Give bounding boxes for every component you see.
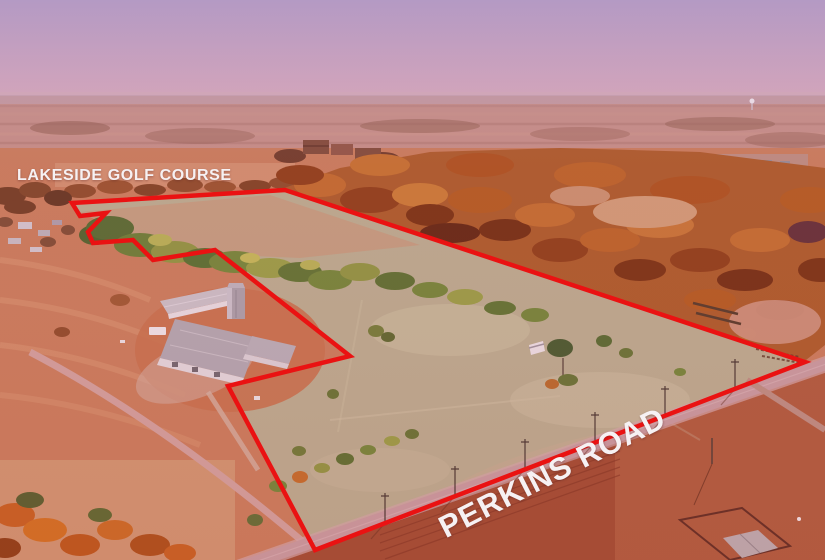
boundary-layer <box>0 0 825 560</box>
aerial-photo: LAKESIDE GOLF COURSE PERKINS ROAD <box>0 0 825 560</box>
lakeside-golf-course-label: LAKESIDE GOLF COURSE <box>17 168 232 184</box>
property-boundary-outline <box>72 190 805 550</box>
